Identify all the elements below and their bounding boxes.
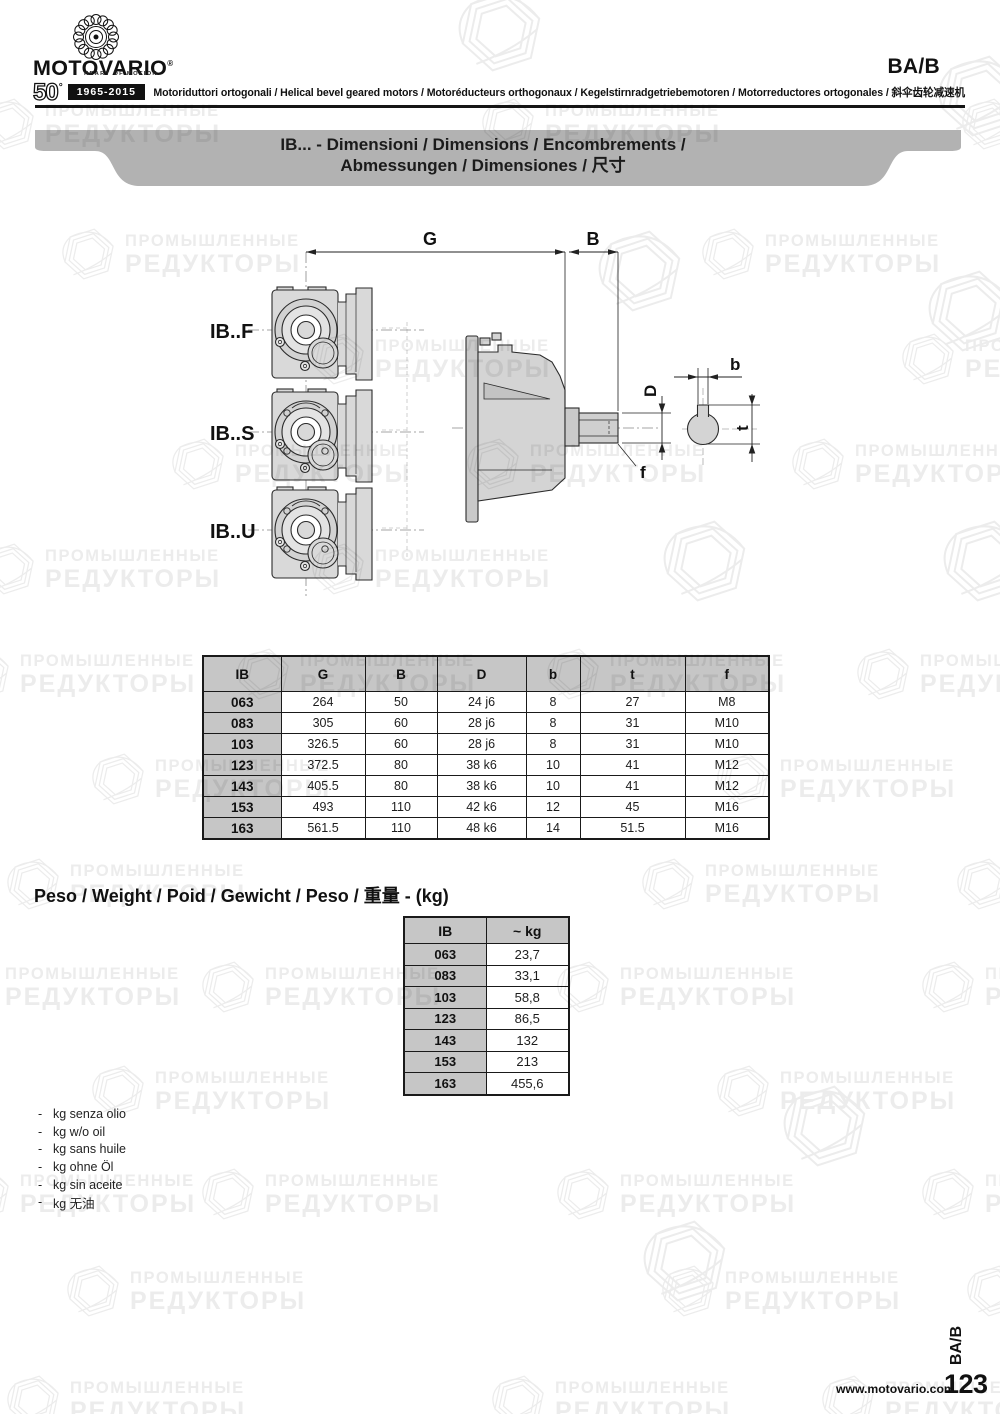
variant-label-ibu: IB..U [210,521,256,543]
dim-label-G: G [423,229,437,249]
dim-label-B: B [587,229,600,249]
page-number: 123 [944,1369,988,1400]
gearbox-views [248,249,760,596]
registered-mark: ® [167,59,173,68]
weight-section-title: Peso / Weight / Poid / Gewicht / Peso / … [34,882,449,908]
page-title-line2: Abmessungen / Dimensiones / 尺寸 [33,155,933,176]
side-view [466,333,636,522]
variant-label-ibf: IB..F [210,321,253,343]
section-code: BA/B [887,55,940,79]
dim-label-D: D [641,385,660,397]
anniversary-number: 50 [33,79,58,106]
page-title: IB... - Dimensioni / Dimensions / Encomb… [33,134,933,176]
section-code-vertical: BA/B [948,1326,966,1365]
variant-label-ibs: IB..S [210,423,254,445]
front-view-ibf [272,287,372,380]
technical-drawing: IB..F IB..S IB..U G B D f b t [0,0,1000,1414]
front-view-ibu [272,487,372,580]
dim-label-b: b [730,355,740,374]
front-view-ibs [272,389,372,482]
motovario-logo-icon [72,13,120,61]
catalog-page: IB..F IB..S IB..U G B D f b t MOTOVARIO®… [0,0,1000,1414]
anniversary-years: 1965-2015 [68,84,145,100]
product-line-title: Motoriduttori ortogonali / Helical bevel… [153,85,965,100]
dim-label-t: t [733,425,752,431]
brand-logo: MOTOVARIO® [33,56,174,81]
header-rule [35,105,965,108]
anniversary-degree: ° [59,82,63,93]
page-title-line1: IB... - Dimensioni / Dimensions / Encomb… [33,134,933,155]
website-link[interactable]: www.motovario.com [836,1382,955,1396]
dim-label-f: f [640,463,646,482]
brand-tagline: HEART OF MOTION [84,71,158,77]
anniversary-badge: 50°1965-2015 [33,79,145,99]
